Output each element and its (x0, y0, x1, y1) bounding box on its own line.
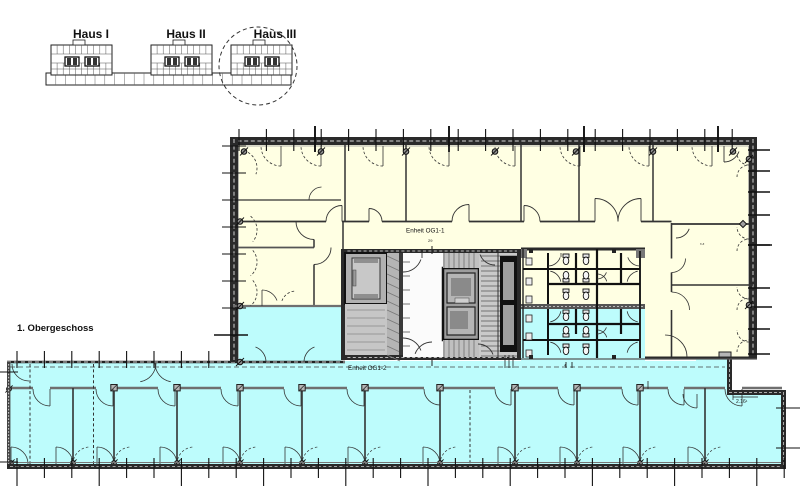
svg-text:Haus II: Haus II (166, 27, 205, 41)
svg-text:1. Obergeschoss: 1. Obergeschoss (17, 323, 94, 334)
svg-text:Haus I: Haus I (73, 27, 109, 41)
svg-text:4: 4 (564, 364, 566, 368)
svg-text:Enheit OG1-1: Enheit OG1-1 (406, 228, 445, 235)
svg-text:2.16¹: 2.16¹ (736, 399, 748, 405)
svg-text:29: 29 (428, 238, 433, 243)
svg-text:ᶿ·ᶿ: ᶿ·ᶿ (700, 242, 705, 247)
svg-text:Enheit OG1-2: Enheit OG1-2 (348, 365, 387, 372)
svg-text:Haus III: Haus III (254, 27, 297, 41)
